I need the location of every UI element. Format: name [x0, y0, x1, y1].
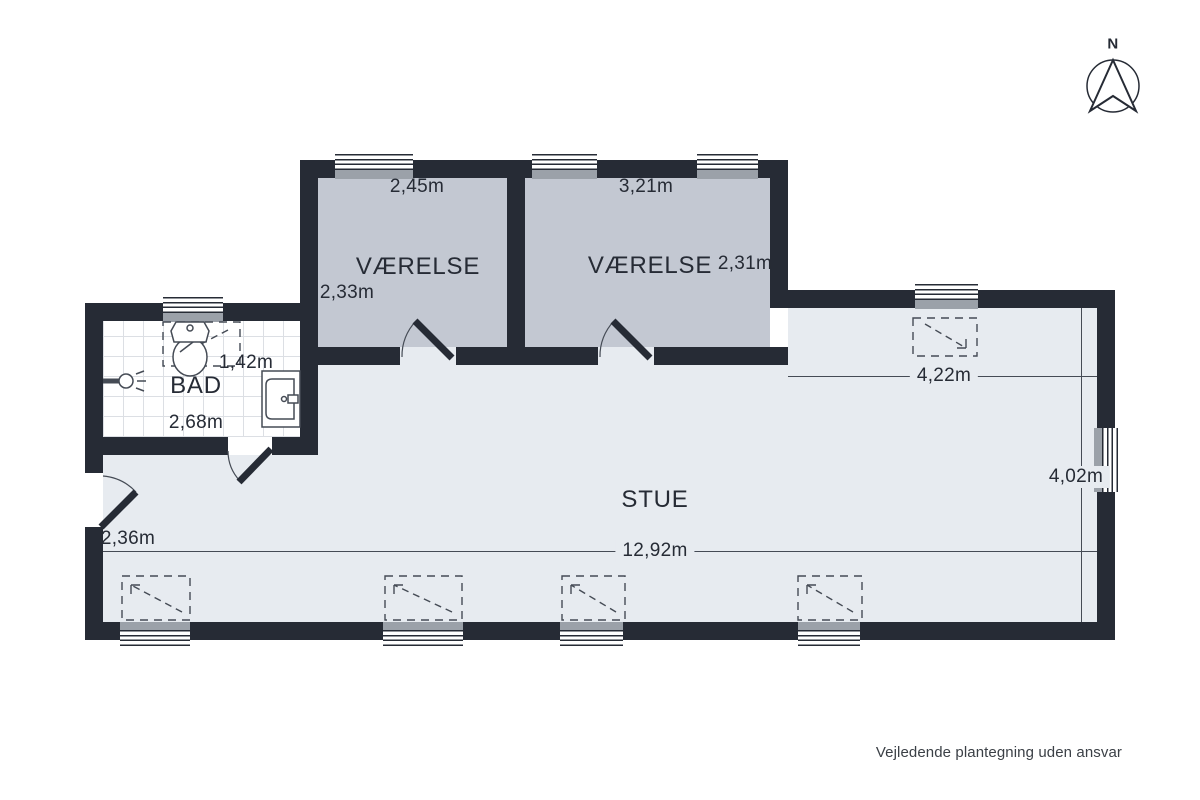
window-livingroom-bottom-1 — [120, 630, 190, 646]
wall-bedroom2-right — [770, 160, 788, 308]
disclaimer-text: Vejledende plantegning uden ansvar — [876, 744, 1122, 761]
window-bedroom2-top-right — [697, 154, 758, 170]
door-threshold-bedroom-2 — [598, 347, 654, 365]
wall-bathroom-bottom-a — [85, 437, 228, 455]
compass-north-label: N — [1107, 36, 1118, 53]
dim-bedroom1-depth: 2,33m — [320, 282, 374, 304]
room-label-livingroom: STUE — [621, 486, 688, 514]
compass-icon — [1087, 60, 1139, 112]
room-label-bathroom: BAD — [170, 372, 222, 400]
dim-bedroom1-width: 2,45m — [390, 176, 444, 198]
floor-plan: 2,45m 3,21m VÆRELSE VÆRELSE 2,33m 2,31m … — [0, 0, 1200, 800]
dim-livingroom-right-depth: 4,02m — [1042, 466, 1110, 488]
dimension-line-right-depth — [1081, 308, 1082, 622]
window-sill — [798, 622, 860, 630]
window-livingroom-bottom-3 — [560, 630, 623, 646]
window-livingroom-top — [915, 284, 978, 300]
window-bathroom-top — [163, 297, 223, 313]
window-livingroom-bottom-2 — [383, 630, 463, 646]
window-sill — [915, 300, 978, 309]
room-label-bedroom1: VÆRELSE — [356, 253, 480, 281]
window-bedroom1-top — [335, 154, 413, 170]
dim-entry-depth: 2,36m — [101, 528, 155, 550]
floor-livingroom-mid — [318, 365, 1097, 455]
wall-bedrooms-bottom-a — [300, 347, 400, 365]
window-livingroom-bottom-4 — [798, 630, 860, 646]
dim-bathroom-width: 2,68m — [169, 412, 223, 434]
wall-bedrooms-bottom-c — [654, 347, 788, 365]
wall-bedrooms-left — [300, 160, 318, 455]
window-bedroom2-top-left — [532, 154, 597, 170]
window-sill — [560, 622, 623, 630]
window-sill — [697, 170, 758, 179]
dim-livingroom-total-width: 12,92m — [615, 540, 694, 562]
window-sill — [383, 622, 463, 630]
wall-bathroom-bottom-b — [272, 437, 318, 455]
wall-bedrooms-divider — [507, 178, 525, 365]
window-sill — [532, 170, 597, 179]
dim-bathroom-depth: 1,42m — [219, 352, 273, 374]
window-sill — [163, 313, 223, 322]
dimension-line-total-width — [103, 551, 1097, 552]
room-label-bedroom2: VÆRELSE — [588, 252, 712, 280]
door-threshold-bedroom-1 — [400, 347, 456, 365]
floor-livingroom-main — [103, 455, 1097, 622]
wall-bedrooms-bottom-b — [456, 347, 598, 365]
dim-bedroom2-depth: 2,31m — [718, 253, 772, 275]
dim-bedroom2-width: 3,21m — [619, 176, 673, 198]
window-sill — [120, 622, 190, 630]
dim-livingroom-right-width: 4,22m — [910, 365, 978, 387]
floor-livingroom-upper-right — [788, 308, 1097, 365]
